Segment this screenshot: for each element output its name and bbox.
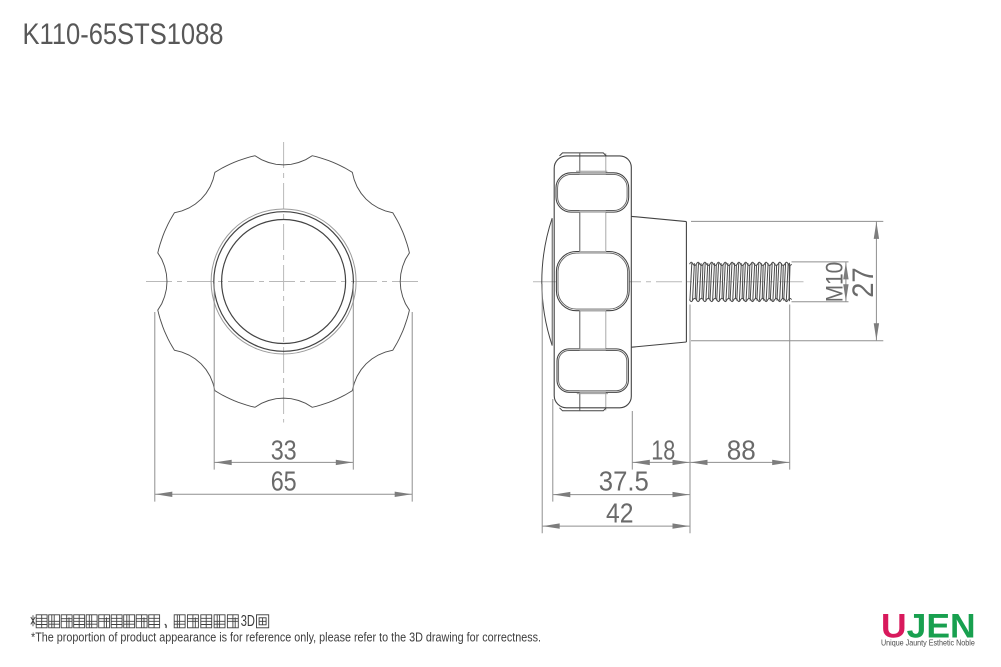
svg-text:42: 42 xyxy=(606,498,634,529)
svg-text:27: 27 xyxy=(847,267,880,297)
svg-text:K110-65STS1088: K110-65STS1088 xyxy=(23,18,224,51)
svg-text:18: 18 xyxy=(651,435,675,466)
svg-text:*The proportion of product app: *The proportion of product appearance is… xyxy=(31,629,541,644)
svg-text:88: 88 xyxy=(727,435,756,466)
svg-text:Unique Jaunty Esthetic Noble: Unique Jaunty Esthetic Noble xyxy=(881,637,975,647)
svg-text:65: 65 xyxy=(271,465,297,496)
svg-text:3D: 3D xyxy=(241,613,255,630)
svg-text:37.5: 37.5 xyxy=(599,466,649,497)
svg-text:33: 33 xyxy=(271,435,297,466)
svg-text:M10: M10 xyxy=(822,262,849,303)
